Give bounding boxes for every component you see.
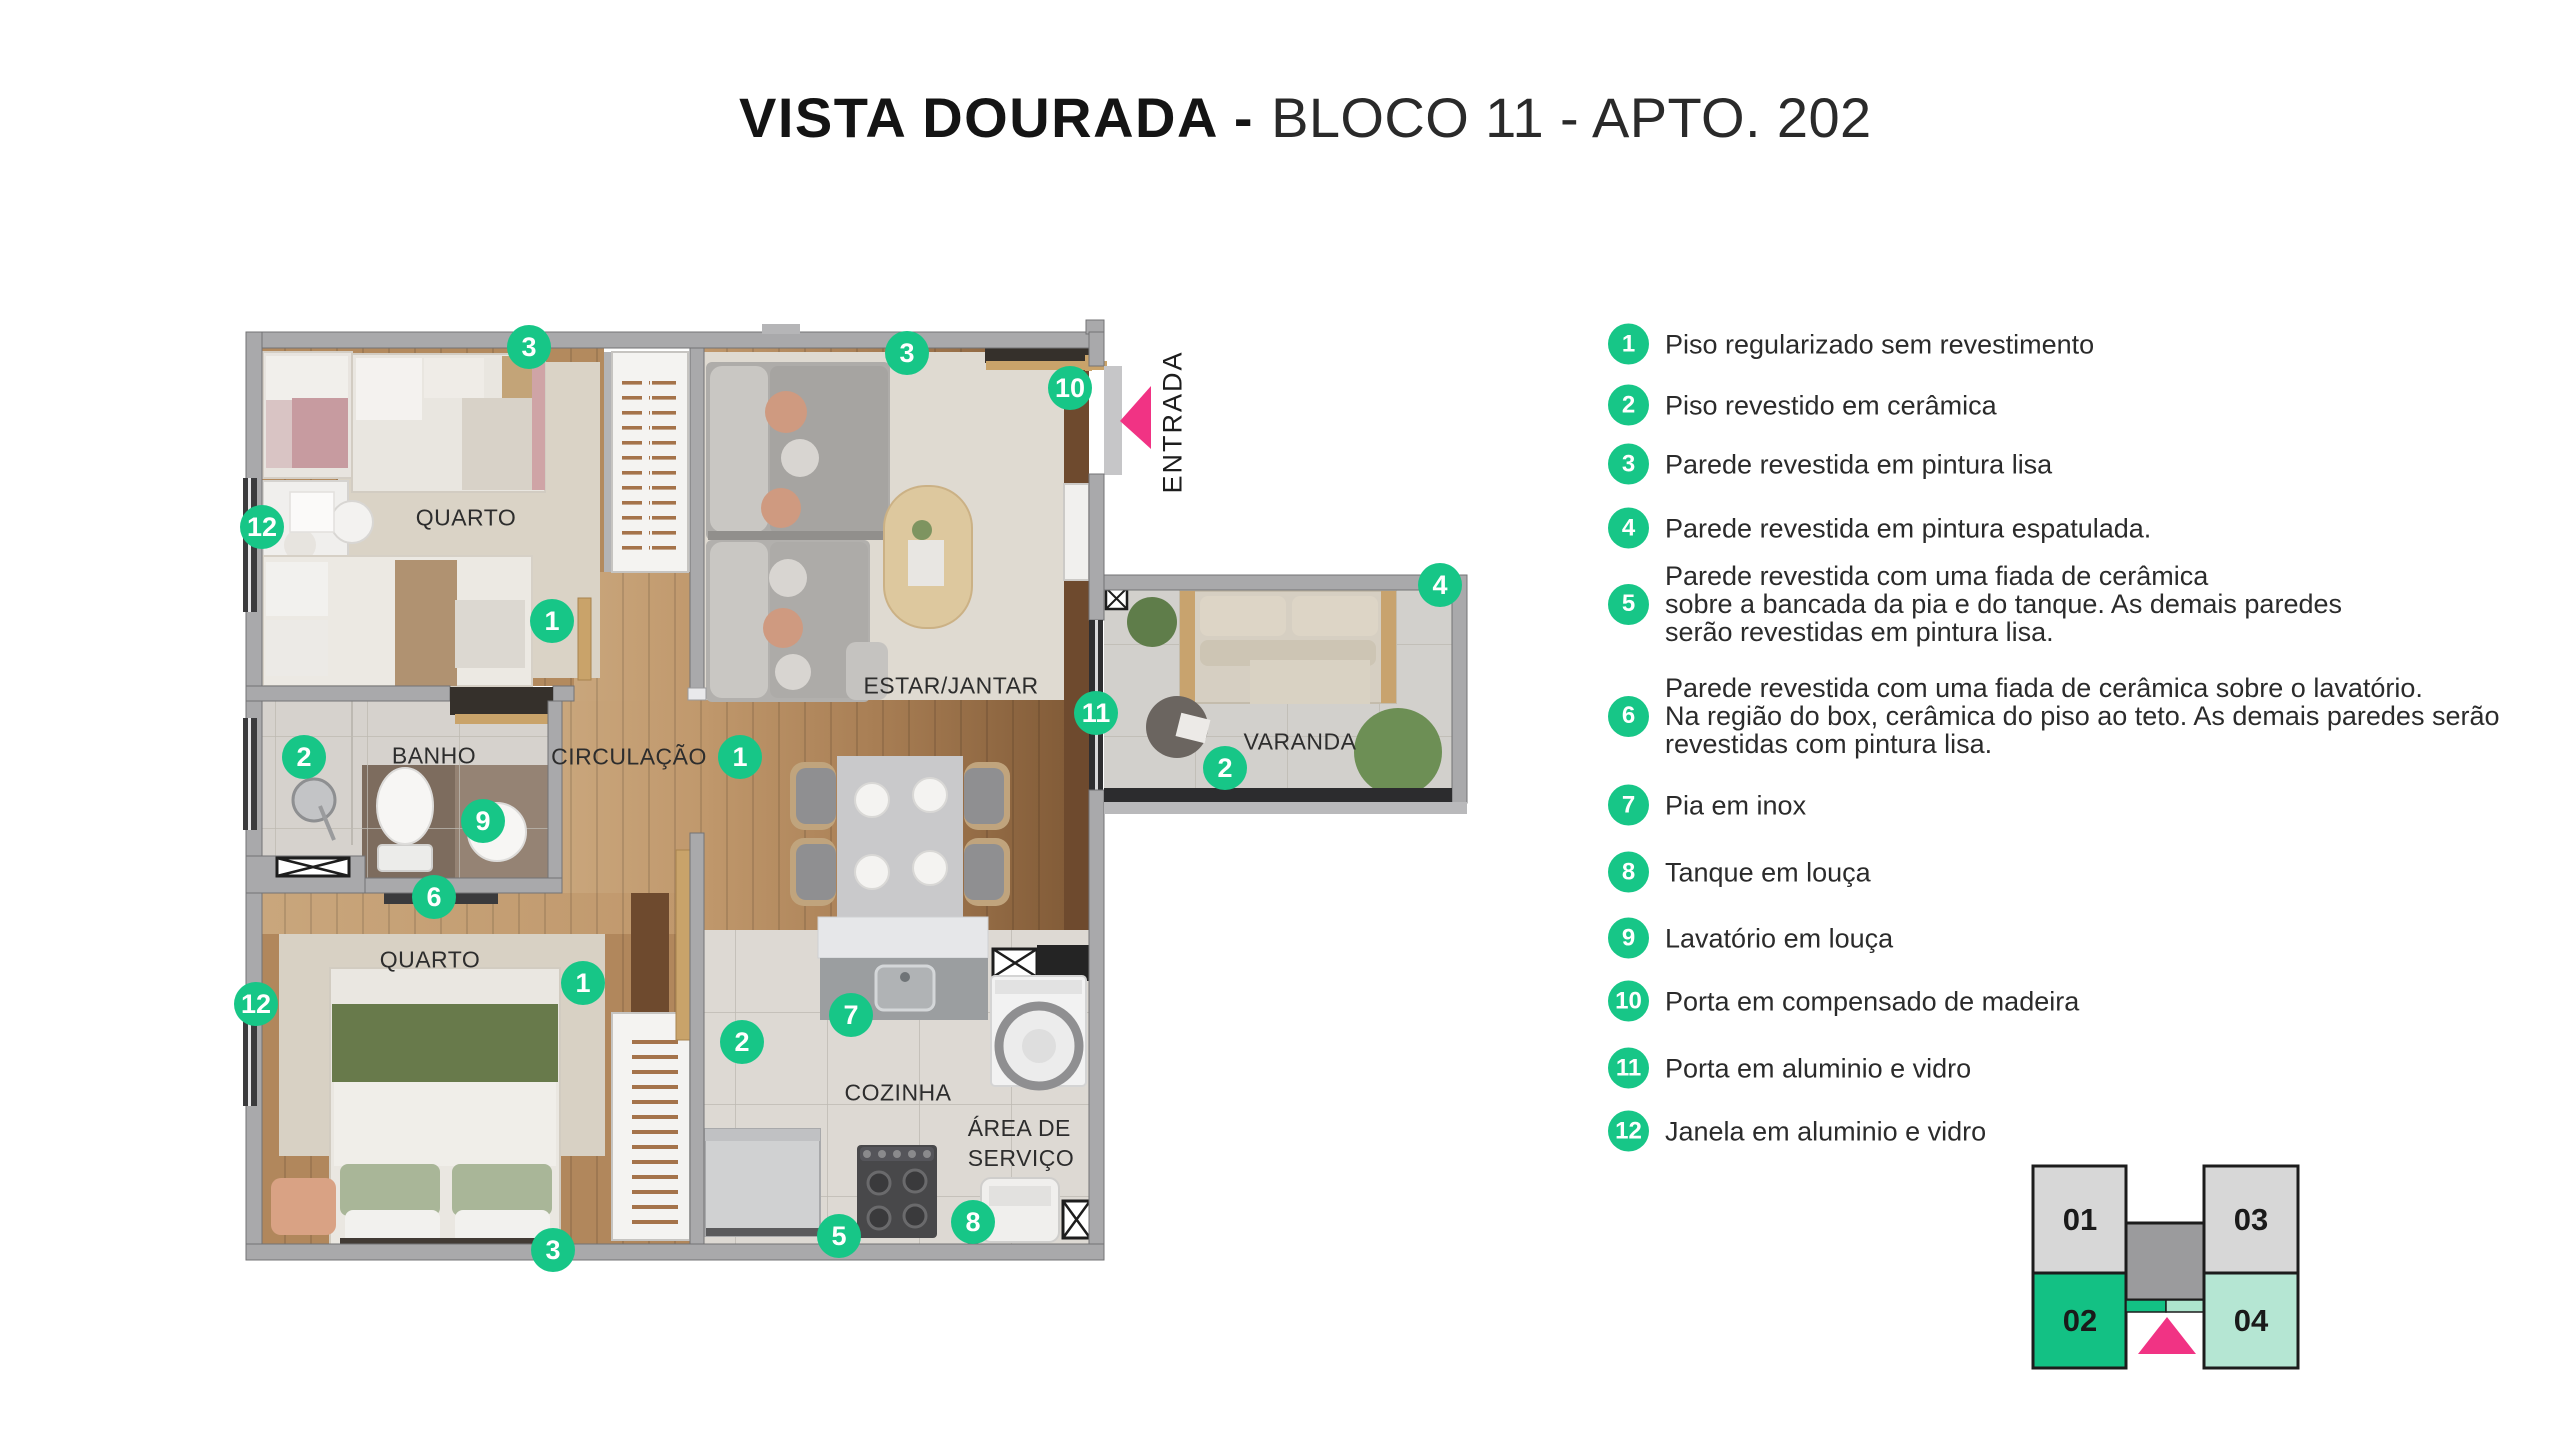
svg-text:01: 01 — [2063, 1202, 2097, 1237]
svg-text:02: 02 — [2063, 1303, 2097, 1338]
svg-text:03: 03 — [2234, 1202, 2268, 1237]
svg-text:04: 04 — [2234, 1303, 2269, 1338]
